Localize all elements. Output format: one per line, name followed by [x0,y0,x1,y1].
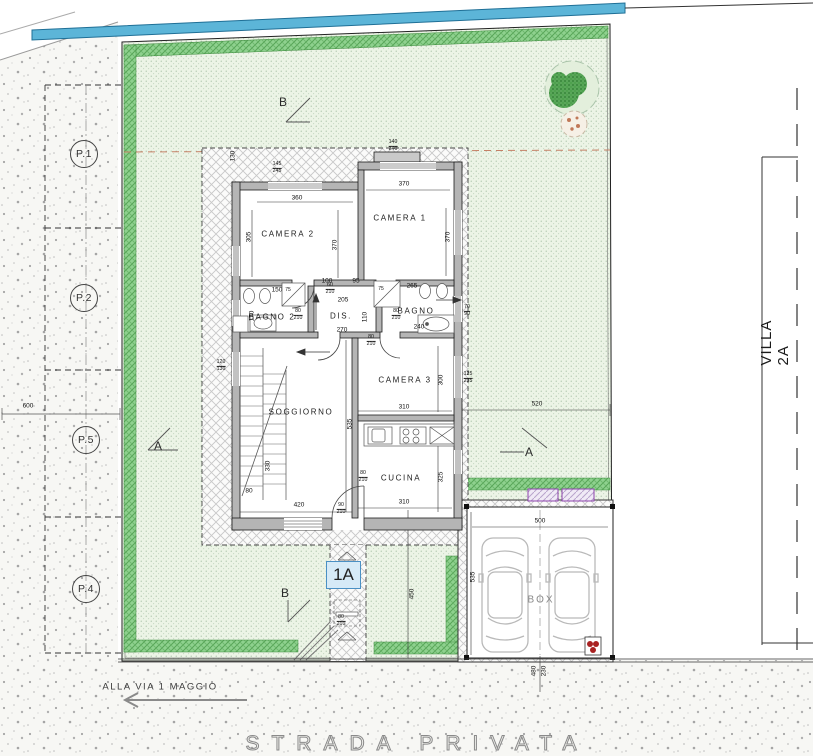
hydrant-icon [585,637,601,655]
bush [561,111,587,137]
villa-label: VILLA 2A [758,320,792,365]
kitchen-counter [364,424,454,446]
unit-badge: 1A [326,561,361,589]
tree [545,61,599,115]
floor [232,182,462,530]
site-plan: CAMERA 2CAMERA 1BAGNO 2DIS.BAGNOSOGGIORN… [0,0,813,756]
street-direction-label: ALLA VIA 1 MAGGIO [102,682,217,693]
site-plan-drawing [0,0,813,756]
street-name-label: STRADA PRIVATA [245,732,588,756]
